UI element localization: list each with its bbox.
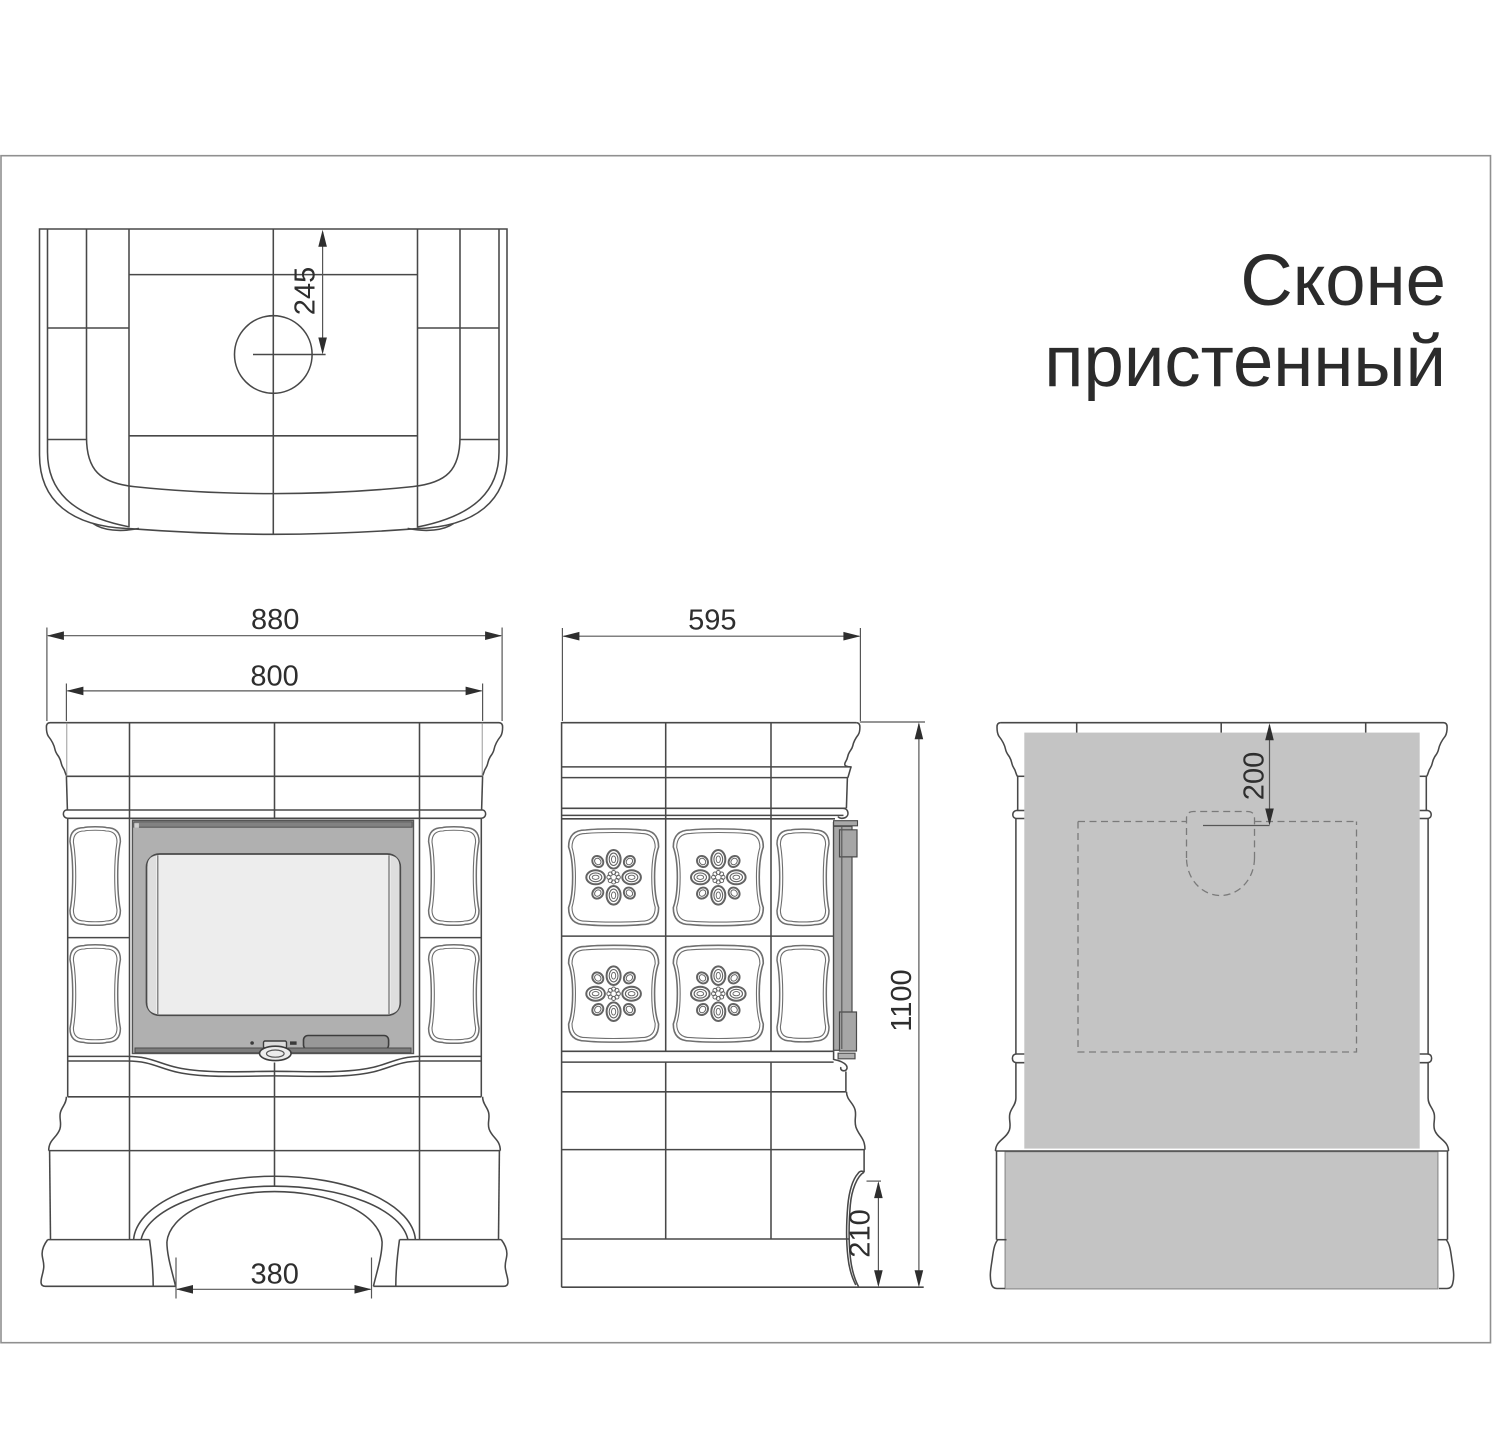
svg-text:200: 200	[1239, 752, 1271, 800]
svg-text:пристенный: пристенный	[1044, 321, 1446, 402]
svg-text:1100: 1100	[886, 969, 918, 1031]
svg-text:Сконе: Сконе	[1240, 240, 1446, 321]
svg-text:595: 595	[688, 605, 736, 637]
svg-text:380: 380	[251, 1259, 299, 1291]
svg-text:245: 245	[290, 267, 322, 315]
svg-text:800: 800	[250, 661, 298, 693]
svg-text:880: 880	[251, 604, 299, 636]
svg-text:210: 210	[845, 1209, 877, 1257]
